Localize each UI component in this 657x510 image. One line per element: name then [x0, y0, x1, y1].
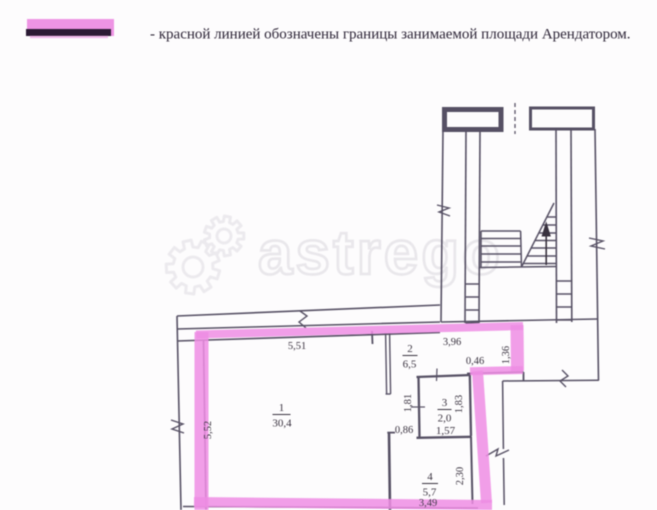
svg-text:6,5: 6,5	[403, 359, 417, 371]
svg-text:1: 1	[279, 402, 285, 414]
svg-text:1,83: 1,83	[454, 395, 465, 413]
svg-text:3,49: 3,49	[419, 498, 437, 509]
svg-text:2,30: 2,30	[455, 467, 466, 485]
svg-text:5,51: 5,51	[288, 341, 306, 352]
svg-text:3: 3	[442, 397, 448, 409]
svg-text:0,86: 0,86	[395, 425, 413, 436]
svg-text:0,46: 0,46	[466, 356, 484, 367]
svg-text:5,7: 5,7	[423, 487, 437, 499]
svg-text:30,4: 30,4	[272, 418, 292, 430]
svg-text:4: 4	[427, 471, 433, 483]
svg-text:1,57: 1,57	[436, 425, 456, 437]
svg-text:2: 2	[407, 343, 413, 355]
svg-text:1,36: 1,36	[501, 346, 512, 364]
svg-text:3,96: 3,96	[443, 337, 461, 348]
svg-text:- красной линией обозначены гр: - красной линией обозначены границы зани…	[150, 27, 631, 43]
svg-text:5,52: 5,52	[203, 421, 214, 439]
svg-text:2,0: 2,0	[438, 413, 452, 425]
svg-text:1,81: 1,81	[403, 394, 414, 412]
